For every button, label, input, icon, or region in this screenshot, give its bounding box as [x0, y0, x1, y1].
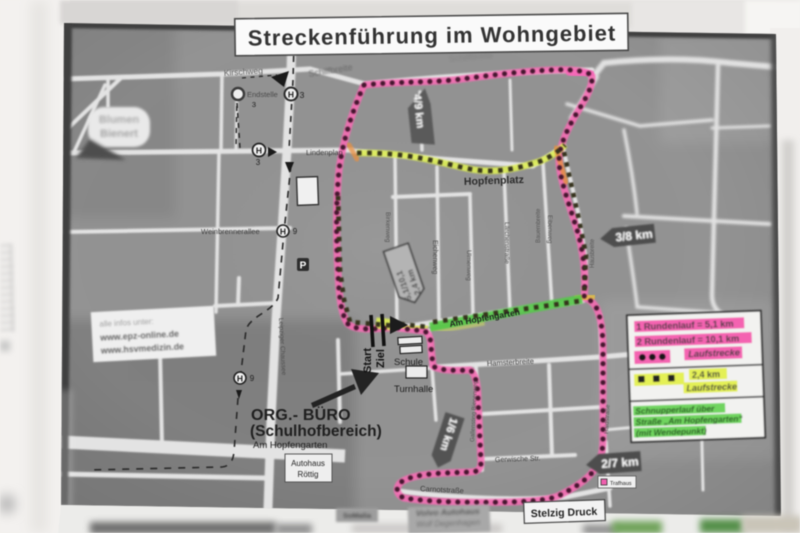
- svg-text:H: H: [280, 227, 286, 237]
- svg-text:Birkenweg: Birkenweg: [384, 212, 391, 243]
- svg-text:9: 9: [293, 227, 298, 236]
- svg-text:Laufstrecke: Laufstrecke: [686, 382, 737, 394]
- svg-text:SoMalia: SoMalia: [343, 511, 372, 520]
- svg-text:(Schulhofbereich): (Schulhofbereich): [250, 423, 382, 440]
- svg-text:2,4 km: 2,4 km: [692, 369, 720, 380]
- svg-text:Bauernbreite: Bauernbreite: [536, 208, 542, 243]
- svg-text:Blumen: Blumen: [99, 114, 140, 126]
- svg-text:3: 3: [256, 158, 261, 167]
- svg-text:H: H: [288, 90, 294, 100]
- svg-text:Eichenweg: Eichenweg: [431, 240, 438, 274]
- svg-text:Röttig: Röttig: [298, 470, 319, 479]
- svg-text:Hausbreite: Hausbreite: [590, 238, 596, 268]
- svg-text:P: P: [300, 261, 307, 272]
- svg-text:3: 3: [252, 100, 256, 109]
- svg-text:ORG.- BÜRO: ORG.- BÜRO: [251, 405, 351, 424]
- svg-text:Am Hopfengarten: Am Hopfengarten: [253, 440, 327, 451]
- svg-text:Autohaus: Autohaus: [291, 459, 325, 468]
- svg-text:Stelzig Druck: Stelzig Druck: [531, 506, 598, 520]
- svg-text:Endstelle: Endstelle: [247, 90, 278, 99]
- svg-text:Weinbrennerallee: Weinbrennerallee: [201, 227, 260, 236]
- svg-text:Start: Start: [362, 348, 374, 373]
- svg-text:Laufstrecke: Laufstrecke: [688, 347, 740, 359]
- svg-text:Streckenführung im Wohngebiet: Streckenführung im Wohngebiet: [248, 20, 617, 50]
- svg-text:Eibenweg: Eibenweg: [546, 215, 553, 244]
- svg-text:3: 3: [300, 90, 305, 100]
- svg-text:H: H: [256, 146, 262, 156]
- svg-text:Bienert: Bienert: [100, 128, 138, 140]
- svg-text:H: H: [237, 374, 243, 384]
- svg-text:Ulmenweg: Ulmenweg: [465, 250, 472, 281]
- svg-text:9: 9: [250, 374, 255, 383]
- svg-text:Ziel: Ziel: [375, 349, 387, 368]
- svg-text:Turnhalle: Turnhalle: [394, 384, 433, 395]
- svg-text:Hopfenplatz: Hopfenplatz: [464, 174, 524, 188]
- svg-text:Trafhaus: Trafhaus: [610, 481, 632, 487]
- svg-text:Lindenplan: Lindenplan: [306, 148, 343, 157]
- svg-text:Lärchenstraße: Lärchenstraße: [503, 222, 510, 264]
- svg-text:2/7 km: 2/7 km: [601, 454, 639, 471]
